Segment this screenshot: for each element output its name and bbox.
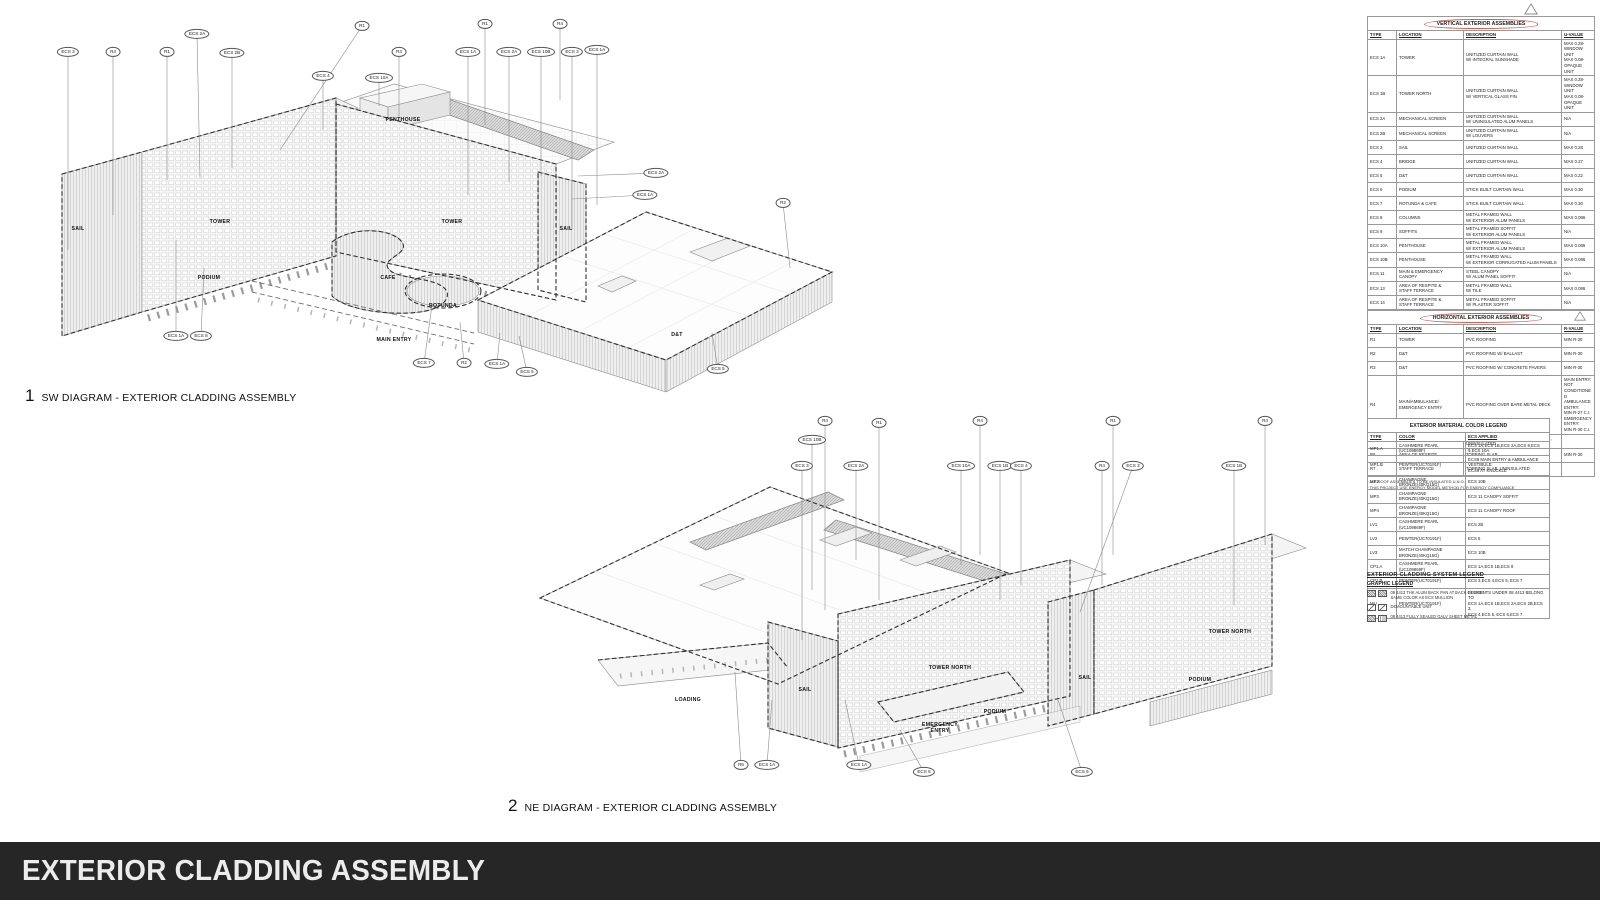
table-cell: ECS 2A: [1368, 112, 1397, 126]
table-row: ECS 2AMECHANICAL SCREENUNITIZED CURTAIN …: [1368, 112, 1595, 126]
table-row: MP2CHAMPAGNE BRONZE(40KQ15G)ECS 10B: [1368, 475, 1550, 489]
table-cell: PEWTER(UC70191F): [1397, 532, 1466, 546]
table-row: ECS 10APENTHOUSEMETAL FRAMED WALL W/ EXT…: [1368, 239, 1595, 253]
table-cell: STEEL CANOPY W/ ALUM PANEL SOFFIT: [1464, 267, 1562, 281]
table-cell: TOWER: [1397, 39, 1464, 75]
building-label: PENTHOUSE: [386, 117, 421, 123]
table-cell: N/A: [1562, 295, 1595, 309]
callout-ecs-6: ECS 6: [913, 767, 935, 777]
table-cell: MIN R-30: [1562, 347, 1595, 361]
table-cell: MAIN & EMERGENCY CANOPY: [1397, 267, 1464, 281]
table-row: ECS 6PODIUMSTICK BUILT CURTAIN WALLMAX 0…: [1368, 182, 1595, 196]
table-cell: PENTHOUSE: [1397, 253, 1464, 267]
callout-ecs-5: ECS 5: [707, 364, 729, 374]
table-cell: ECS 4: [1368, 154, 1397, 168]
table-cell: MAX 0.28: [1562, 140, 1595, 154]
graphic-legend-item: 08 4413 THK ALUM BACK PAN AT BACK OF ECS…: [1367, 590, 1547, 601]
table-cell: ECS 2B: [1466, 518, 1550, 532]
table-row: MP1.BPEWTER(UC70191F)ECS8 MAIN ENTRY & A…: [1368, 455, 1550, 475]
table-row: ECS 3SAILUNITIZED CURTAIN WALLMAX 0.28: [1368, 140, 1595, 154]
column-header: ECS APPLIED: [1466, 433, 1550, 442]
table-cell: R3: [1368, 361, 1397, 375]
table-row: ECS 13AREA OF RESPITE & STAFF TERRACEMET…: [1368, 281, 1595, 295]
callout-ecs-4: ECS 4: [312, 71, 334, 81]
building-label: SAIL: [1078, 675, 1091, 681]
ne-diagram-number: 2: [508, 796, 517, 816]
callout-r4: R4: [973, 416, 988, 426]
revision-triangle-icon: [1524, 3, 1538, 15]
callout-r4: R4: [1258, 416, 1273, 426]
table-cell: ECS 10B: [1368, 253, 1397, 267]
vertical-assemblies-title-text: VERTICAL EXTERIOR ASSEMBLIES: [1437, 21, 1526, 27]
table-cell: MAX 0.086: [1562, 253, 1595, 267]
table-cell: ECS 6: [1368, 182, 1397, 196]
column-header: TYPE: [1368, 325, 1397, 334]
table-cell: CHAMPAGNE BRONZE(40KQ15G): [1397, 475, 1466, 489]
graphic-legend-items: 08 4413 THK ALUM BACK PAN AT BACK OF ECS…: [1367, 590, 1547, 623]
table-row: ECS 14AREA OF RESPITE & STAFF TERRACEMET…: [1368, 295, 1595, 309]
table-cell: ECS 14: [1368, 295, 1397, 309]
callout-ecs-1a: ECS 1A: [846, 760, 871, 770]
callout-ecs-2a: ECS 2A: [496, 47, 521, 57]
table-row: MP1.ACASHMERE PEARL (UC109869F)ECS 1A,EC…: [1368, 441, 1550, 455]
column-header: COLOR: [1397, 433, 1466, 442]
callout-ecs-3: ECS 3: [57, 47, 79, 57]
table-cell: LV3: [1368, 546, 1397, 560]
sw-diagram-title-text: SW DIAGRAM - EXTERIOR CLADDING ASSEMBLY: [41, 392, 296, 404]
table-cell: MAX 0.30: [1562, 182, 1595, 196]
table-cell: METAL FRAMED SOFFIT W/ EXTERIOR ALUM PAN…: [1464, 225, 1562, 239]
table-cell: STICK BUILT CURTAIN WALL: [1464, 182, 1562, 196]
table-cell: SOFFITS: [1397, 225, 1464, 239]
callout-ecs-2a: ECS 2A: [184, 29, 209, 39]
table-cell: ECS 10A: [1368, 239, 1397, 253]
graphic-legend-text: 08 4413 FULLY SEALED GALV SHEET METAL: [1391, 614, 1478, 620]
building-label: D&T: [671, 332, 683, 338]
table-cell: ECS 1A,ECS 1B,ECS 2A,ECS 8,ECS 9,ECS 10A: [1466, 441, 1550, 455]
graphic-legend-item: DEMOUNTABLE UNIT: [1367, 604, 1547, 612]
table-cell: TOWER: [1397, 333, 1464, 347]
callout-ecs-1a: ECS 1A: [484, 359, 509, 369]
table-row: ECS 7ROTUNDA & CAFESTICK BUILT CURTAIN W…: [1368, 196, 1595, 210]
table-cell: CHAMPAGNE BRONZE(40KQ15G): [1397, 503, 1466, 517]
table-cell: MAX 0.28-WINDOW UNIT MAX 0.08-OPAQUE UNI…: [1562, 76, 1595, 112]
table-cell: ECS 5: [1368, 168, 1397, 182]
table-cell: PVC ROOFING W/ CONCRETE PAVERS: [1464, 361, 1562, 375]
sheet-title: EXTERIOR CLADDING ASSEMBLY: [22, 855, 485, 888]
table-cell: ECS 7: [1368, 196, 1397, 210]
callout-ecs-1a: ECS 1A: [632, 190, 657, 200]
table-cell: D&T: [1397, 361, 1464, 375]
callout-r5: R5: [734, 760, 749, 770]
callout-r4: R4: [106, 47, 121, 57]
table-cell: MP4: [1368, 503, 1397, 517]
column-header: LOCATION: [1397, 325, 1464, 334]
sw-diagram-title: 1 SW DIAGRAM - EXTERIOR CLADDING ASSEMBL…: [25, 386, 296, 406]
building-label: SAIL: [559, 226, 572, 232]
table-cell: MIN R-30: [1562, 361, 1595, 375]
callout-r2: R2: [457, 358, 472, 368]
table-row: R1TOWERPVC ROOFINGMIN R-30: [1368, 333, 1595, 347]
table-row: LV1CASHMERE PEARL (UC109869F)ECS 2B: [1368, 518, 1550, 532]
galv-sheet-metal-symbol: [1367, 615, 1387, 623]
column-header: LOCATION: [1397, 31, 1464, 40]
callout-ecs-1a: ECS 1A: [584, 45, 609, 55]
callout-ecs-1a: ECS 1A: [754, 760, 779, 770]
building-line-art: [0, 0, 1600, 900]
callout-ecs-1a: ECS 1A: [163, 331, 188, 341]
table-cell: ECS 11 CANOPY ROOF: [1466, 503, 1550, 517]
callout-ecs-2b: ECS 2B: [219, 48, 244, 58]
table-row: ECS 1ATOWERUNITIZED CURTAIN WALL W/ INTE…: [1368, 39, 1595, 75]
callout-ecs-1b: ECS 1B: [1221, 461, 1246, 471]
callout-ecs-5: ECS 5: [516, 367, 538, 377]
callout-ecs-8: ECS 8: [190, 331, 212, 341]
graphic-legend-item: 08 4413 FULLY SEALED GALV SHEET METAL: [1367, 614, 1547, 622]
table-cell: ROTUNDA & CAFE: [1397, 196, 1464, 210]
table-row: LV3MATCH CHAMPAGNE BRONZE(40KQ15G)ECS 10…: [1368, 546, 1550, 560]
table-cell: PODIUM: [1397, 182, 1464, 196]
building-label: CAFE: [380, 275, 395, 281]
alum-back-pan-hatch-symbol: [1367, 590, 1387, 598]
table-cell: MP1.A: [1368, 441, 1397, 455]
horizontal-assemblies-title-text: HORIZONTAL EXTERIOR ASSEMBLIES: [1433, 315, 1529, 321]
table-cell: MAX 0.086: [1562, 239, 1595, 253]
callout-ecs-10b: ECS 10B: [527, 47, 555, 57]
callout-leader-lines: [0, 0, 1600, 900]
table-cell: MAX 0.22: [1562, 168, 1595, 182]
table-cell: MAX 0.30: [1562, 196, 1595, 210]
table-cell: ECS 2B: [1368, 126, 1397, 140]
building-label: TOWER NORTH: [929, 665, 971, 671]
ne-diagram-title-text: NE DIAGRAM - EXTERIOR CLADDING ASSEMBLY: [524, 802, 777, 814]
cladding-system-legend-title: EXTERIOR CLADDING SYSTEM LEGEND: [1367, 572, 1547, 578]
table-cell: METAL FRAMED WALL W/ EXTERIOR ALUM PANEL…: [1464, 210, 1562, 224]
table-row: ECS 5D&TUNITIZED CURTAIN WALLMAX 0.22: [1368, 168, 1595, 182]
column-header: TYPE: [1368, 31, 1397, 40]
building-label: TOWER: [210, 219, 231, 225]
table-cell: N/A: [1562, 267, 1595, 281]
table-row: ECS 9SOFFITSMETAL FRAMED SOFFIT W/ EXTER…: [1368, 225, 1595, 239]
table-cell: PENTHOUSE: [1397, 239, 1464, 253]
table-cell: D&T: [1397, 347, 1464, 361]
table-cell: ECS 13: [1368, 281, 1397, 295]
table-cell: UNITIZED CURTAIN WALL: [1464, 140, 1562, 154]
callout-r4: R4: [392, 47, 407, 57]
column-header: R-VALUE: [1562, 325, 1595, 334]
callout-ecs-3: ECS 3: [791, 461, 813, 471]
callout-ecs-10a: ECS 10A: [947, 461, 975, 471]
table-cell: MP3: [1368, 489, 1397, 503]
table-row: LV2PEWTER(UC70191F)ECS 5: [1368, 532, 1550, 546]
demountable-unit-symbol: [1367, 604, 1387, 612]
table-cell: ECS8 MAIN ENTRY & AMBULANCE VESTIBULE EC…: [1466, 455, 1550, 475]
table-cell: STICK BUILT CURTAIN WALL: [1464, 196, 1562, 210]
callout-ecs-3: ECS 3: [1122, 461, 1144, 471]
revision-cloud: VERTICAL EXTERIOR ASSEMBLIES: [1430, 21, 1533, 27]
table-cell: LV2: [1368, 532, 1397, 546]
table-cell: D&T: [1397, 168, 1464, 182]
drawing-sheet: 1 SW DIAGRAM - EXTERIOR CLADDING ASSEMBL…: [0, 0, 1600, 900]
table-cell: METAL FRAMED WALL W/ TILE: [1464, 281, 1562, 295]
table-cell: UNITIZED CURTAIN WALL W/ INTEGRAL SUNSHA…: [1464, 39, 1562, 75]
table-cell: PVC ROOFING: [1464, 333, 1562, 347]
building-label: PODIUM: [984, 709, 1007, 715]
column-header: DESCRIPTION: [1464, 31, 1562, 40]
table-row: ECS 2BMECHANICAL SCREENUNITIZED CURTAIN …: [1368, 126, 1595, 140]
building-label: TOWER: [442, 219, 463, 225]
callout-r4: R4: [818, 416, 833, 426]
table-cell: ECS 8: [1368, 210, 1397, 224]
table-cell: COLUMNS: [1397, 210, 1464, 224]
table-cell: MP2: [1368, 475, 1397, 489]
callout-r4: R4: [1095, 461, 1110, 471]
table-row: ECS 8COLUMNSMETAL FRAMED WALL W/ EXTERIO…: [1368, 210, 1595, 224]
table-cell: ECS 1B: [1368, 76, 1397, 112]
graphic-legend-text: DEMOUNTABLE UNIT: [1391, 604, 1433, 610]
table-cell: ECS 11: [1368, 267, 1397, 281]
table-cell: METAL FRAMED WALL W/ EXTERIOR ALUM PANEL…: [1464, 239, 1562, 253]
ne-diagram-title: 2 NE DIAGRAM - EXTERIOR CLADDING ASSEMBL…: [508, 796, 777, 816]
horizontal-assemblies-title: HORIZONTAL EXTERIOR ASSEMBLIES: [1367, 310, 1595, 324]
callout-ecs-1a: ECS 1A: [455, 47, 480, 57]
table-cell: N/A: [1562, 225, 1595, 239]
building-label: TOWER NORTH: [1209, 629, 1251, 635]
building-label: PODIUM: [1189, 677, 1212, 683]
table-row: MP4CHAMPAGNE BRONZE(40KQ15G)ECS 11 CANOP…: [1368, 503, 1550, 517]
table-cell: R1: [1368, 333, 1397, 347]
table-cell: MIN R-30: [1562, 448, 1595, 462]
table-cell: UNITIZED CURTAIN WALL: [1464, 154, 1562, 168]
table-cell: ECS 10B: [1466, 475, 1550, 489]
revision-triangle-icon: [1574, 311, 1586, 321]
callout-ecs-4: ECS 4: [1010, 461, 1032, 471]
sw-diagram-number: 1: [25, 386, 34, 406]
table-row: ECS 4BRIDGEUNITIZED CURTAIN WALLMAX 0.27: [1368, 154, 1595, 168]
callout-r1: R1: [872, 418, 887, 428]
table-row: R3D&TPVC ROOFING W/ CONCRETE PAVERSMIN R…: [1368, 361, 1595, 375]
table-cell: UNITIZED CURTAIN WALL: [1464, 168, 1562, 182]
sheet-title-bar: EXTERIOR CLADDING ASSEMBLY: [0, 842, 1600, 900]
callout-ecs-2a: ECS 2A: [643, 168, 668, 178]
table-cell: ECS 5: [1466, 532, 1550, 546]
callout-r1: R1: [1106, 416, 1121, 426]
table-cell: UNITIZED CURTAIN WALL W/ UNINSULATED ALU…: [1464, 112, 1562, 126]
callout-r1: R1: [355, 21, 370, 31]
table-cell: ECS 11 CANOPY SOFFIT: [1466, 489, 1550, 503]
callout-ecs-10b: ECS 10B: [798, 435, 826, 445]
building-label: EMERGENCY ENTRY: [922, 722, 958, 734]
callout-ecs-7: ECS 7: [413, 358, 435, 368]
material-color-legend-title-text: EXTERIOR MATERIAL COLOR LEGEND: [1410, 423, 1508, 429]
table-cell: AREA OF RESPITE & STAFF TERRACE: [1397, 295, 1464, 309]
table-cell: MAX 0.28-WINDOW UNIT MAX 0.08-OPAQUE UNI…: [1562, 39, 1595, 75]
callout-r1: R1: [160, 47, 175, 57]
graphic-legend-text: 08 4413 THK ALUM BACK PAN AT BACK OF ECS…: [1391, 590, 1484, 601]
table-cell: UNITIZED CURTAIN WALL W/ LOUVERS: [1464, 126, 1562, 140]
table-cell: CASHMERE PEARL (UC109869F): [1397, 518, 1466, 532]
table-row: MP3CHAMPAGNE BRONZE(40KQ15G)ECS 11 CANOP…: [1368, 489, 1550, 503]
table-cell: [1562, 462, 1595, 476]
table-cell: R2: [1368, 347, 1397, 361]
callout-r1: R1: [478, 19, 493, 29]
table-cell: ECS 3: [1368, 140, 1397, 154]
table-cell: ECS 9: [1368, 225, 1397, 239]
graphic-legend-title: GRAPHIC LEGEND: [1367, 581, 1547, 587]
building-label: SAIL: [798, 687, 811, 693]
building-label: SAIL: [71, 226, 84, 232]
table-cell: MECHANICAL SCREEN: [1397, 112, 1464, 126]
table-cell: AREA OF RESPITE & STAFF TERRACE: [1397, 281, 1464, 295]
table-cell: PEWTER(UC70191F): [1397, 455, 1466, 475]
table-cell: MP1.B: [1368, 455, 1397, 475]
table-cell: MAX 0.27: [1562, 154, 1595, 168]
table-cell: UNITIZED CURTAIN WALL W/ VERTICAL GLASS …: [1464, 76, 1562, 112]
table-cell: MIN R-30: [1562, 333, 1595, 347]
callout-ecs-6: ECS 6: [1071, 767, 1093, 777]
column-header: DESCRIPTION: [1464, 325, 1562, 334]
table-row: ECS 11MAIN & EMERGENCY CANOPYSTEEL CANOP…: [1368, 267, 1595, 281]
vertical-assemblies-table: TYPELOCATIONDESCRIPTIONU-VALUEECS 1ATOWE…: [1367, 30, 1595, 310]
table-cell: SAIL: [1397, 140, 1464, 154]
table-cell: ECS 10B: [1466, 546, 1550, 560]
callout-ecs-3: ECS 3: [561, 47, 583, 57]
callout-ecs-10a: ECS 10A: [365, 73, 393, 83]
table-cell: N/A: [1562, 112, 1595, 126]
column-header: TYPE: [1368, 433, 1397, 442]
table-cell: MATCH CHAMPAGNE BRONZE(40KQ15G): [1397, 546, 1466, 560]
table-cell: ECS 1A: [1368, 39, 1397, 75]
table-row: ECS 10BPENTHOUSEMETAL FRAMED WALL W/ EXT…: [1368, 253, 1595, 267]
material-color-legend-title: EXTERIOR MATERIAL COLOR LEGEND: [1367, 418, 1550, 432]
revision-cloud: HORIZONTAL EXTERIOR ASSEMBLIES: [1426, 315, 1536, 321]
callout-r2: R2: [776, 198, 791, 208]
callout-r4: R4: [553, 19, 568, 29]
table-cell: BRIDGE: [1397, 154, 1464, 168]
table-cell: MECHANICAL SCREEN: [1397, 126, 1464, 140]
vertical-assemblies-title: VERTICAL EXTERIOR ASSEMBLIES: [1367, 16, 1595, 30]
table-cell: MAX 0.086: [1562, 281, 1595, 295]
table-cell: N/A: [1562, 126, 1595, 140]
table-cell: LV1: [1368, 518, 1397, 532]
table-row: R2D&TPVC ROOFING W/ BALLASTMIN R-30: [1368, 347, 1595, 361]
table-cell: PVC ROOFING W/ BALLAST: [1464, 347, 1562, 361]
table-cell: MAIN ENTRY: NOT CONDITIONED AMBULANCE EN…: [1562, 375, 1595, 434]
sw-diagram-art: [62, 84, 832, 392]
building-label: ROTUNDA: [429, 303, 457, 309]
building-label: LOADING: [675, 697, 701, 703]
table-cell: CHAMPAGNE BRONZE(40KQ15G): [1397, 489, 1466, 503]
callout-ecs-2a: ECS 2A: [843, 461, 868, 471]
table-cell: [1562, 434, 1595, 448]
table-cell: CASHMERE PEARL (UC109869F): [1397, 441, 1466, 455]
building-label: PODIUM: [198, 275, 221, 281]
building-label: MAIN ENTRY: [376, 337, 411, 343]
table-row: ECS 1BTOWER NORTHUNITIZED CURTAIN WALL W…: [1368, 76, 1595, 112]
callout-ecs-1b: ECS 1B: [987, 461, 1012, 471]
table-cell: TOWER NORTH: [1397, 76, 1464, 112]
table-cell: METAL FRAMED WALL W/ EXTERIOR CORRUGATED…: [1464, 253, 1562, 267]
cladding-system-legend-panel: EXTERIOR CLADDING SYSTEM LEGEND GRAPHIC …: [1367, 572, 1547, 622]
column-header: U-VALUE: [1562, 31, 1595, 40]
table-cell: METAL FRAMED SOFFIT W/ PLASTER SOFFIT: [1464, 295, 1562, 309]
table-cell: MAX 0.086: [1562, 210, 1595, 224]
